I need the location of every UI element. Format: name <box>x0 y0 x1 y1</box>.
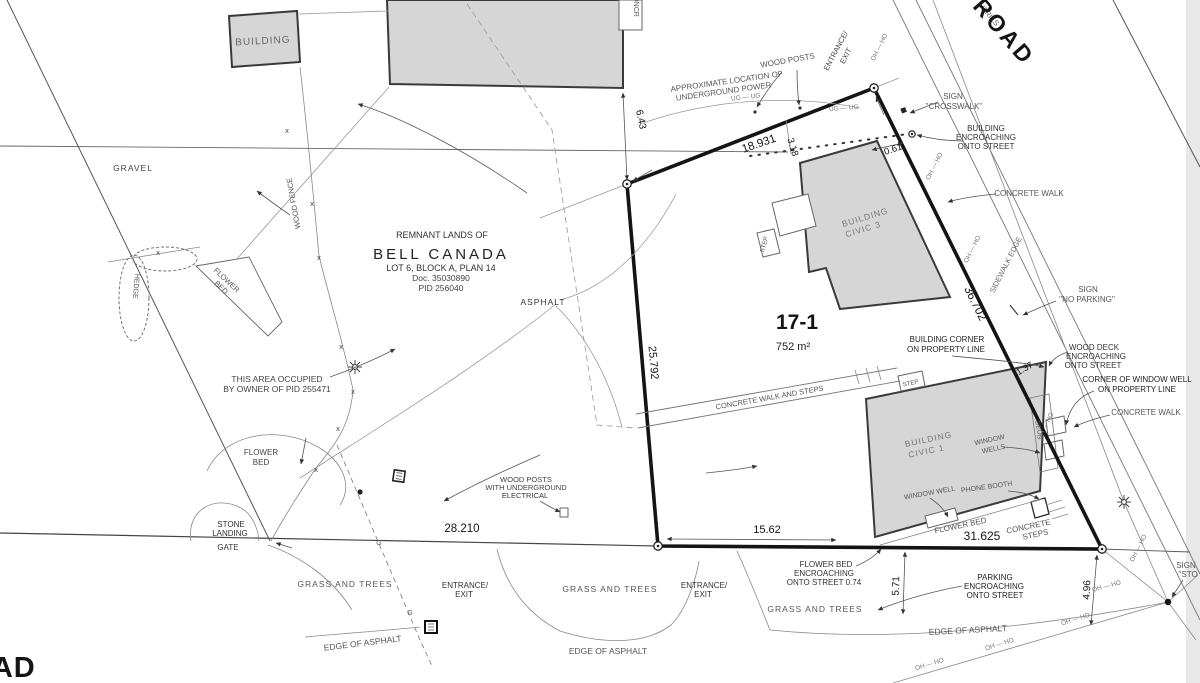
fence-x-mark: x <box>351 387 355 396</box>
fence-x-mark: x <box>314 465 318 474</box>
parcel-area-label: 752 m² <box>776 341 811 353</box>
fence-x-mark: x <box>317 253 321 262</box>
wood-deck-label-3: ONTO STREET <box>1065 361 1122 370</box>
asphalt-label: ASPHALT <box>520 297 565 307</box>
edge-of-asphalt-label-2: EDGE OF ASPHALT <box>569 646 647 656</box>
dim-31-625-label: 31.625 <box>964 529 1001 543</box>
fence-x-mark: x <box>310 199 314 208</box>
gate-label: GATE <box>217 543 238 552</box>
wood-post-dot <box>753 110 756 113</box>
utility-pole-icon <box>1117 495 1131 509</box>
entrance-exit-label-1a: ENTRANCE/ <box>442 581 489 590</box>
grass-and-trees-label-1: GRASS AND TREES <box>297 579 392 589</box>
flower-bed-lower-label-2: BED <box>253 458 270 467</box>
entrance-exit-label-2a: ENTRANCE/ <box>681 581 728 590</box>
parking-encroaching-label-1: PARKING <box>977 573 1012 582</box>
sign-no-parking-label-2: ''NO PARKING'' <box>1059 295 1115 304</box>
entrance-exit-label-1b: EXIT <box>455 590 473 599</box>
corner-window-well-label-2: ON PROPERTY LINE <box>1098 385 1176 394</box>
building-corner-label-2: ON PROPERTY LINE <box>907 345 985 354</box>
dim-28-210-label: 28.210 <box>444 523 479 535</box>
doc-number-label: Doc. 35030890 <box>412 273 470 283</box>
bell-canada-label: BELL CANADA <box>373 246 509 263</box>
flower-bed-lower-label-1: FLOWER <box>244 448 278 457</box>
gas-mark: G <box>376 540 381 547</box>
wood-deck-label-1: WOOD DECK <box>1069 343 1120 352</box>
flower-bed-encroaching-label-3: ONTO STREET 0.74 <box>787 578 862 587</box>
parking-encroaching-label-3: ONTO STREET <box>967 591 1024 600</box>
sign-crosswalk-label-1: SIGN <box>943 92 963 101</box>
survey-monument-icon <box>870 84 878 92</box>
this-area-occupied-label-2: BY OWNER OF PID 255471 <box>223 384 331 394</box>
grass-and-trees-label-2: GRASS AND TREES <box>562 584 657 594</box>
dim-5-71-label: 5.71 <box>891 576 903 596</box>
concrete-pad-label: CONCR <box>632 0 639 17</box>
sign-stop-label-2: ''STO <box>1178 570 1197 579</box>
found-monument-icon <box>909 131 915 137</box>
corner-window-well-label-1: CORNER OF WINDOW WELL <box>1082 375 1192 384</box>
survey-monument-icon <box>1098 545 1106 553</box>
this-area-occupied-label-1: THIS AREA OCCUPIED <box>231 374 322 384</box>
fence-x-mark: x <box>336 424 340 433</box>
survey-monument-icon <box>654 542 662 550</box>
flower-bed-encroaching-label-1: FLOWER BED <box>800 560 853 569</box>
corner-dot <box>1165 599 1171 605</box>
wood-post-dot <box>798 106 801 109</box>
pid-number-label: PID 256040 <box>419 283 464 293</box>
survey-plan-page: BUILDING CONCR GRAVEL WOOD FENCE REMNANT… <box>0 0 1200 683</box>
large-building <box>387 0 623 88</box>
wood-deck-label-2: ENCROACHING <box>1066 352 1126 361</box>
flower-bed-encroaching-label-2: ENCROACHING <box>794 569 854 578</box>
concrete-walk-label-1: CONCRETE WALK <box>994 189 1064 198</box>
building-corner-label-1: BUILDING CORNER <box>910 335 985 344</box>
fence-x-mark: x <box>339 342 343 351</box>
entrance-exit-label-2b: EXIT <box>694 590 712 599</box>
wood-posts-electrical-label-3: ELECTRICAL <box>502 491 548 500</box>
sign-no-parking-label-1: SIGN <box>1078 285 1098 294</box>
gravel-label: GRAVEL <box>113 163 153 173</box>
post-dot <box>357 489 362 494</box>
concrete-walk-label-2: CONCRETE WALK <box>1111 408 1181 417</box>
building-encroaching-label-2: ENCROACHING <box>956 133 1016 142</box>
remnant-lands-label: REMNANT LANDS OF <box>396 230 488 240</box>
fence-x-mark: x <box>156 248 160 257</box>
parcel-id-label: 17-1 <box>776 311 818 334</box>
gas-mark: G <box>407 610 412 617</box>
stone-landing-label-1: STONE <box>217 520 244 529</box>
catch-basin-icon <box>425 621 437 633</box>
survey-monument-icon <box>623 180 631 188</box>
stone-landing-label-2: LANDING <box>212 529 248 538</box>
catch-basin-icon <box>393 470 405 482</box>
parking-encroaching-label-2: ENCROACHING <box>964 582 1024 591</box>
grass-and-trees-label-3: GRASS AND TREES <box>767 604 862 614</box>
page-edge-strip <box>1186 0 1200 683</box>
paper-background <box>0 0 1200 683</box>
building-encroaching-label-3: ONTO STREET <box>958 142 1015 151</box>
utility-pole-icon <box>348 360 362 374</box>
sign-stop-label-1: SIGN <box>1176 561 1196 570</box>
road-name-bottom-label: OAD <box>0 652 36 683</box>
sign-crosswalk-label-2: ''CROSSWALK'' <box>926 102 983 111</box>
lot-block-plan-label: LOT 6, BLOCK A, PLAN 14 <box>386 263 495 273</box>
building-encroaching-label-1: BUILDING <box>967 124 1005 133</box>
site-plan-drawing: BUILDING CONCR GRAVEL WOOD FENCE REMNANT… <box>0 0 1200 683</box>
dim-15-62-label: 15.62 <box>753 524 781 536</box>
fence-x-mark: x <box>285 126 289 135</box>
